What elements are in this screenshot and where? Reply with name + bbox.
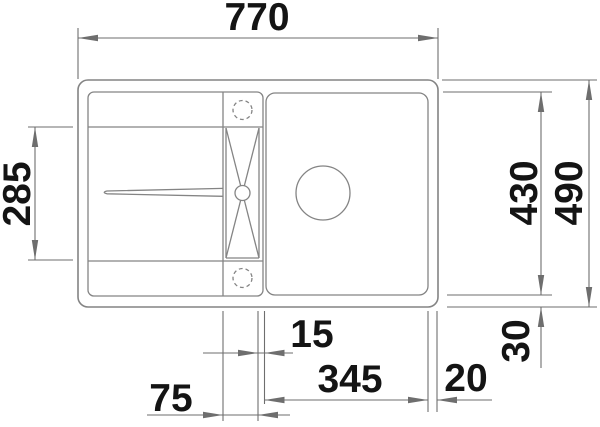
- dim-label-490: 490: [548, 160, 591, 225]
- dim-label-30: 30: [495, 319, 538, 362]
- tap-hole-bottom: [233, 269, 252, 288]
- arrowhead-down: [32, 240, 38, 260]
- sink-outer-edge: [78, 80, 438, 307]
- dim-label-285: 285: [0, 161, 39, 226]
- dim-channel-offset: 75: [147, 377, 290, 420]
- tap-hole-top: [233, 101, 252, 120]
- arrowhead-right: [418, 35, 438, 41]
- arrowhead-left: [78, 35, 98, 41]
- arrowhead-left: [258, 412, 278, 418]
- arrowhead-right: [238, 350, 258, 356]
- arrowhead-up: [32, 127, 38, 147]
- dim-right-margin: 20: [437, 357, 492, 403]
- dim-bottom-margin: 30: [495, 307, 544, 368]
- dim-width-total: 770: [78, 0, 438, 79]
- arrowhead-up: [538, 92, 544, 112]
- dim-label-20: 20: [444, 357, 487, 400]
- drain-groove: [104, 188, 223, 196]
- arrowhead-up: [586, 80, 592, 100]
- arrowhead-right: [203, 412, 223, 418]
- dim-label-430: 430: [503, 160, 546, 225]
- dim-label-345: 345: [317, 358, 382, 401]
- cross-center-hole: [235, 186, 250, 201]
- sink-body: [78, 80, 438, 307]
- dim-height-inner: 430: [443, 92, 552, 295]
- main-bowl: [266, 93, 428, 295]
- tap-ledge-strip: [223, 92, 259, 296]
- arrowhead-up: [538, 307, 544, 327]
- arrowhead-down: [538, 275, 544, 295]
- dim-drainboard-depth: 285: [0, 127, 73, 260]
- dim-label-770: 770: [224, 0, 289, 39]
- arrowhead-left: [265, 397, 285, 403]
- sink-dimension-drawing: 770 285 430 490 30: [0, 0, 600, 427]
- arrowhead-right: [408, 397, 428, 403]
- dim-label-75: 75: [149, 377, 192, 420]
- bowl-drain-hole: [296, 166, 350, 220]
- arrowhead-down: [586, 287, 592, 307]
- arrowhead-left: [265, 350, 285, 356]
- technical-drawing-canvas: 770 285 430 490 30: [0, 0, 600, 427]
- dim-label-15: 15: [290, 313, 333, 356]
- dim-bowl-width: 345: [265, 358, 429, 403]
- bowl-edge: [266, 93, 428, 295]
